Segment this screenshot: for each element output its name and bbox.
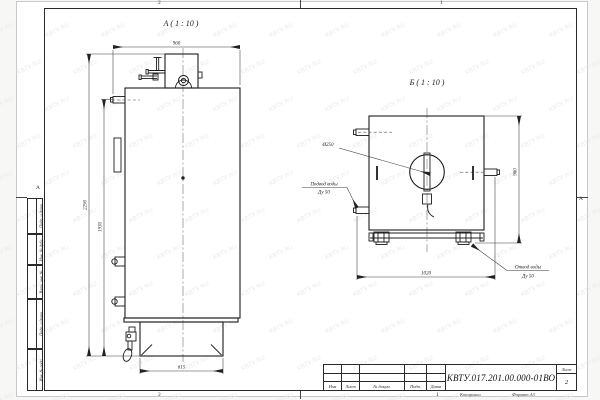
- title-block-change-table: Изм Лист № докум. Подп. Дата: [324, 365, 446, 390]
- filing-cell-sign-date-2: Подп. и дата: [27, 299, 43, 349]
- sheet-label: Лист: [557, 365, 576, 374]
- filing-cell-divider: [36, 199, 37, 233]
- sheet-number: 2: [557, 374, 576, 390]
- zone-number-bottom-right: 1: [436, 392, 439, 398]
- drawing-frame-border: [44, 8, 577, 391]
- zone-letter-left: А: [36, 185, 40, 191]
- footer-copied: Копировал: [460, 392, 481, 397]
- document-number: КВТУ.017.201.00.000-01ВО: [446, 365, 557, 390]
- zone-number-top-right: 1: [440, 0, 443, 6]
- change-row-empty-2: [324, 374, 445, 383]
- filing-cell-vzam-inv: Взам. инв. №: [27, 265, 43, 299]
- col-list: Лист: [342, 382, 360, 390]
- sheet-cell: Лист 2: [557, 365, 576, 390]
- filing-cell-label: Подп. и дата: [39, 199, 44, 233]
- zone-number-bottom-left: 2: [158, 392, 161, 398]
- watermark-text: КВТУ.RU: [0, 21, 14, 39]
- filing-cell-divider: [36, 266, 37, 298]
- col-podp: Подп.: [405, 382, 427, 390]
- watermark-text: КВТУ.RU: [0, 243, 14, 261]
- filing-cell-inv-dupl: Инв. № дубл.: [27, 234, 43, 265]
- filing-cell-label: Инв. № подл.: [39, 353, 44, 387]
- col-docnum: № докум.: [360, 382, 405, 390]
- zone-tick-bottom: [300, 391, 301, 399]
- filing-strip: Подп. и дата Инв. № дубл. Взам. инв. № П…: [27, 198, 43, 391]
- watermark-text: КВТУ.RU: [0, 169, 14, 187]
- zone-tick-top: [300, 0, 301, 8]
- watermark-text: КВТУ.RU: [0, 95, 14, 113]
- col-izm: Изм: [324, 382, 342, 390]
- zone-tick-right: [577, 197, 588, 198]
- change-row-headers: Изм Лист № докум. Подп. Дата: [324, 382, 445, 390]
- footer-format: Формат А3: [512, 392, 535, 397]
- title-block: Изм Лист № докум. Подп. Дата КВТУ.017.20…: [323, 364, 577, 391]
- filing-cell-divider: [36, 235, 37, 264]
- filing-cell-inv-podl: Инв. № подл.: [27, 349, 43, 391]
- filing-cell-label: Взам. инв. №: [39, 265, 44, 299]
- zone-tick-left: [16, 197, 27, 198]
- filing-cell-divider: [36, 300, 37, 348]
- col-data: Дата: [427, 382, 445, 390]
- drawing-sheet-page: { "watermark": { "text": "КВТУ.RU" }, "f…: [0, 0, 600, 400]
- filing-cell-label: Подп. и дата: [39, 307, 44, 341]
- watermark-text: КВТУ.RU: [0, 391, 14, 400]
- filing-cell-divider: [36, 350, 37, 390]
- zone-number-top-left: 2: [158, 0, 161, 6]
- change-row-empty-1: [324, 365, 445, 374]
- filing-cell-sign-date-1: Подп. и дата: [27, 198, 43, 234]
- filing-cell-label: Инв. № дубл.: [39, 232, 44, 266]
- watermark-text: КВТУ.RU: [0, 317, 14, 335]
